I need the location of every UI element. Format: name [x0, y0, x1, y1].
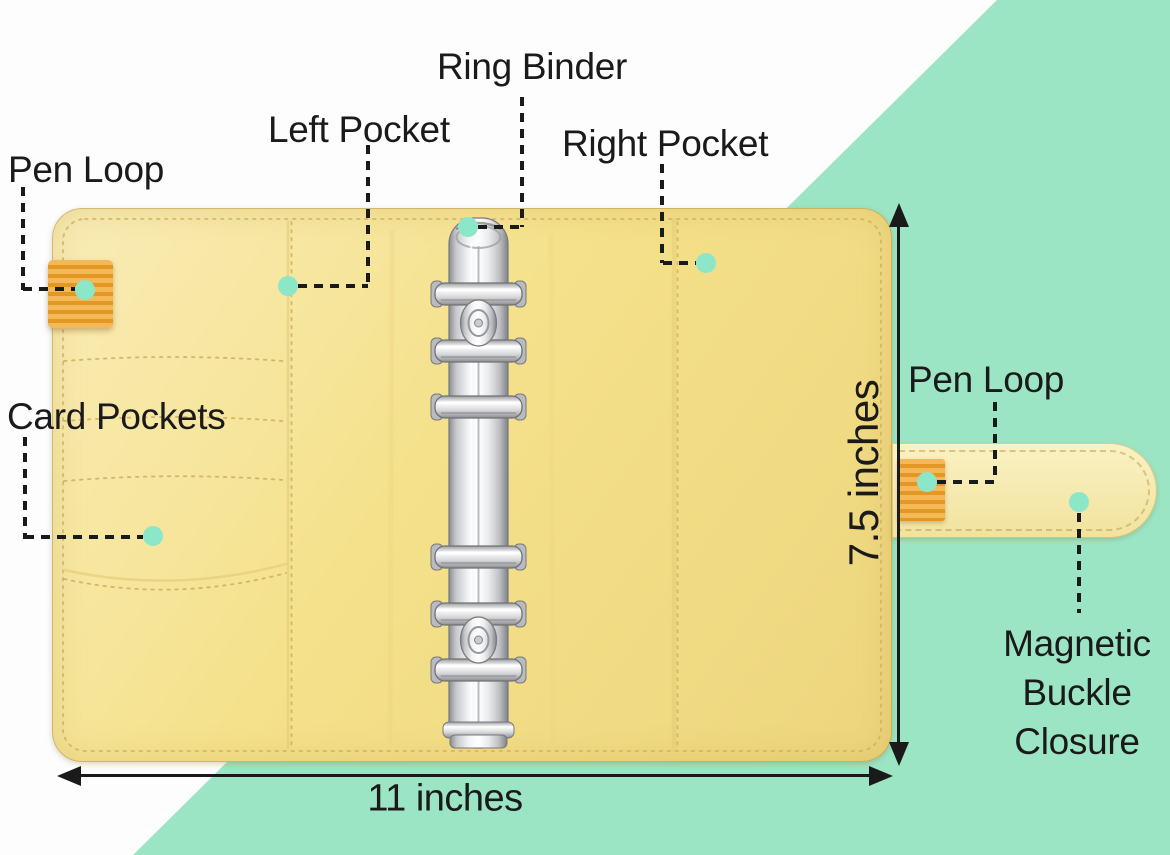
label-magnetic-buckle-closure: Magnetic Buckle Closure [977, 619, 1170, 767]
connector-card-pockets [25, 535, 143, 539]
marker-dot-card-pockets [143, 526, 163, 546]
connector-ring-binder [478, 225, 522, 229]
arrowhead-right-icon [869, 766, 893, 786]
label-ring-binder: Ring Binder [437, 48, 627, 87]
product-diagram-canvas: 7.5 inches 11 inches Pen Loop Left Pocke… [0, 0, 1170, 855]
arrowhead-down-icon [889, 742, 909, 766]
label-pen-loop-left: Pen Loop [8, 151, 164, 190]
connector-card-pockets [23, 437, 27, 539]
marker-dot-right-pocket [696, 253, 716, 273]
connector-right-pocket [660, 164, 664, 263]
label-left-pocket: Left Pocket [268, 111, 450, 150]
arrowhead-left-icon [57, 766, 81, 786]
connector-pen-loop-right [993, 402, 997, 482]
connector-right-pocket [663, 261, 696, 265]
dimension-line-height [897, 222, 900, 746]
connector-left-pocket [366, 145, 370, 287]
connector-ring-binder [520, 97, 524, 227]
connector-pen-loop-left [23, 287, 75, 291]
label-right-pocket: Right Pocket [562, 125, 768, 164]
arrowhead-up-icon [889, 203, 909, 227]
connector-pen-loop-left [21, 187, 25, 290]
label-pen-loop-right: Pen Loop [908, 361, 1064, 400]
ring-binder-mechanism [423, 212, 533, 757]
dimension-label-width: 11 inches [367, 778, 522, 821]
marker-dot-pen-loop-right [917, 472, 937, 492]
connector-left-pocket [298, 284, 368, 288]
label-card-pockets: Card Pockets [7, 398, 226, 437]
dimension-label-height: 7.5 inches [840, 380, 888, 566]
marker-dot-pen-loop-left [75, 280, 95, 300]
marker-dot-ring-binder [458, 217, 478, 237]
marker-dot-left-pocket [278, 276, 298, 296]
connector-magnetic-buckle [1077, 513, 1081, 613]
marker-dot-magnetic-buckle [1069, 492, 1089, 512]
connector-pen-loop-right [937, 480, 995, 484]
